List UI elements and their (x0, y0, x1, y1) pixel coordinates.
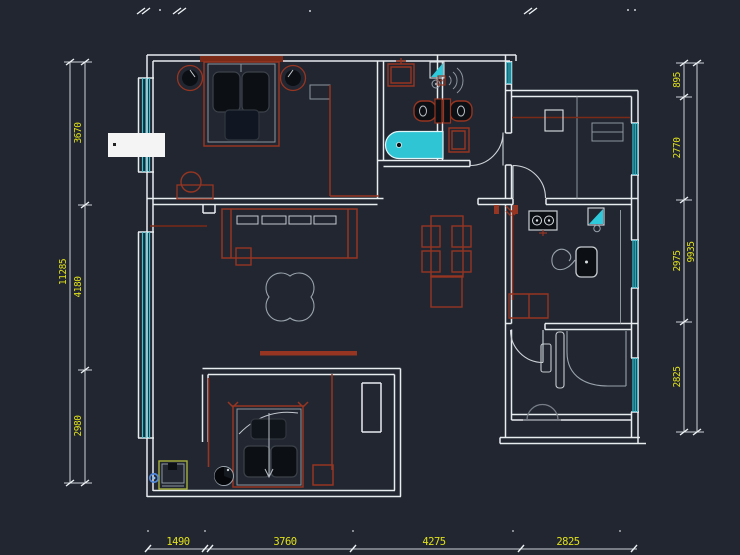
nightstand-lamp[interactable] (281, 66, 306, 91)
bathtub-drain (396, 142, 401, 147)
washbasin (388, 58, 414, 86)
drain-point (150, 474, 158, 482)
door-swings[interactable] (470, 133, 546, 363)
laundry[interactable] (150, 461, 187, 489)
wash-stand (523, 404, 561, 420)
walls[interactable] (138, 55, 646, 497)
side-table (236, 248, 251, 265)
sofa-cushions (237, 216, 336, 224)
dim-text[interactable]: 3760 (273, 536, 296, 548)
dining-chair (452, 251, 471, 272)
extension-point-markers (147, 530, 621, 532)
refrigerator (588, 208, 604, 232)
pillow (271, 446, 297, 477)
pillow (242, 72, 269, 112)
pillow (244, 446, 270, 477)
blank-label (108, 133, 165, 157)
desk-chair (556, 332, 564, 388)
dining-set[interactable] (422, 216, 471, 307)
window-left-bottom (143, 232, 150, 438)
wardrobe (313, 374, 333, 485)
dim-text[interactable]: 4275 (422, 536, 445, 548)
dressing-stool (181, 172, 201, 192)
faucet (552, 249, 575, 269)
dim-text[interactable]: 1490 (166, 536, 189, 548)
tv-console (260, 351, 357, 356)
door-jamb-mark (513, 205, 518, 214)
desk-counter (567, 331, 626, 386)
dim-text[interactable]: 2975 (672, 251, 683, 272)
wardrobe (330, 85, 379, 196)
room-top-right[interactable] (512, 110, 630, 141)
window-left-top (143, 78, 150, 172)
dimension-left[interactable]: 3670 4180 2980 11285 (58, 59, 92, 486)
toilet[interactable] (414, 99, 442, 123)
dining-chair (452, 226, 471, 247)
kitchen-counter (506, 206, 515, 300)
cabinet (592, 123, 623, 141)
floor-plan-drawing[interactable]: 3670 4180 2980 11285 895 2770 2975 2825 … (0, 0, 740, 555)
toilet[interactable] (444, 99, 473, 123)
bedroom-second[interactable] (209, 374, 334, 487)
dim-text[interactable]: 2980 (73, 415, 84, 437)
dim-text[interactable]: 895 (672, 72, 683, 88)
gas-stove[interactable] (529, 211, 557, 236)
pillow (213, 72, 240, 112)
dim-text[interactable]: 2825 (556, 536, 579, 548)
blanket (225, 110, 259, 140)
door-study (511, 330, 544, 363)
bedroom-master[interactable] (177, 56, 379, 199)
nightstand-lamp[interactable] (178, 66, 203, 91)
dimension-top-cropped (137, 8, 636, 14)
base-cabinet (509, 294, 548, 318)
wall-partition-gray (577, 97, 621, 324)
cad-canvas[interactable]: 3670 4180 2980 11285 895 2770 2975 2825 … (0, 0, 740, 555)
potted-plant (215, 467, 234, 486)
dim-text[interactable]: 4180 (73, 276, 84, 298)
bathtub (386, 132, 444, 159)
door-jamb-mark (494, 205, 499, 214)
bathroom[interactable] (386, 58, 473, 159)
dim-text[interactable]: 9935 (686, 242, 697, 263)
kitchen-sink[interactable] (552, 247, 597, 277)
window-right-top (633, 123, 637, 175)
dim-text[interactable]: 3670 (73, 122, 84, 144)
kitchen[interactable] (506, 206, 604, 318)
dim-text[interactable]: 11285 (58, 259, 69, 285)
closet-box (545, 110, 563, 131)
dimension-right[interactable]: 895 2770 2975 2825 9935 (672, 60, 704, 435)
dimension-bottom[interactable]: 1490 3760 4275 2825 (145, 530, 637, 552)
sideboard (431, 276, 462, 307)
bath-cabinet (449, 128, 469, 152)
dim-text[interactable]: 2825 (672, 367, 683, 388)
study-room[interactable] (523, 331, 626, 420)
dim-text[interactable]: 2770 (672, 137, 683, 159)
door-bathroom (470, 133, 503, 166)
window-study (633, 358, 637, 412)
clover-rug (266, 273, 314, 321)
window-kitchen (633, 240, 637, 288)
door-room-top-right (513, 166, 546, 199)
headboard (200, 56, 283, 62)
window-hall (507, 62, 511, 84)
